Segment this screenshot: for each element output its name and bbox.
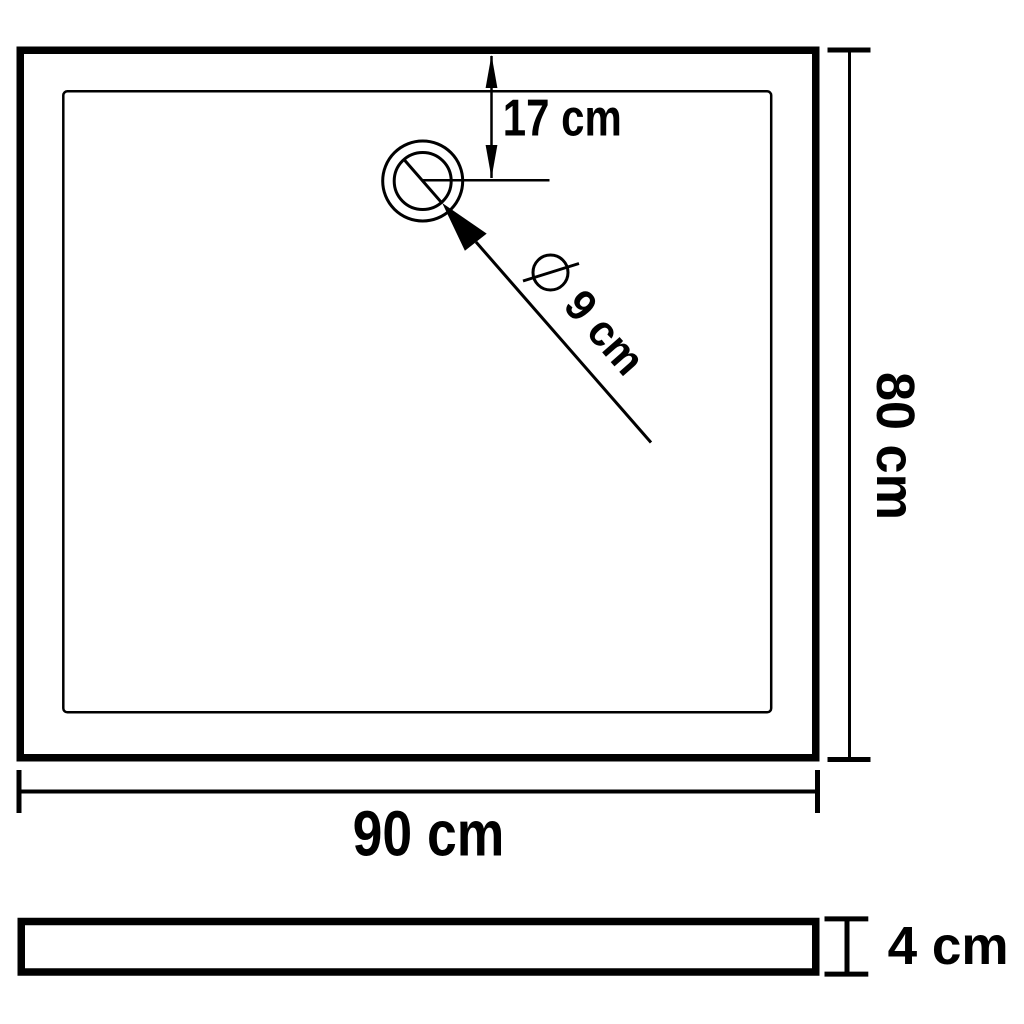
svg-text:80 cm: 80 cm bbox=[865, 372, 925, 520]
svg-text:4 cm: 4 cm bbox=[888, 916, 1009, 976]
svg-text:90 cm: 90 cm bbox=[353, 798, 505, 870]
svg-text:17 cm: 17 cm bbox=[503, 89, 622, 147]
